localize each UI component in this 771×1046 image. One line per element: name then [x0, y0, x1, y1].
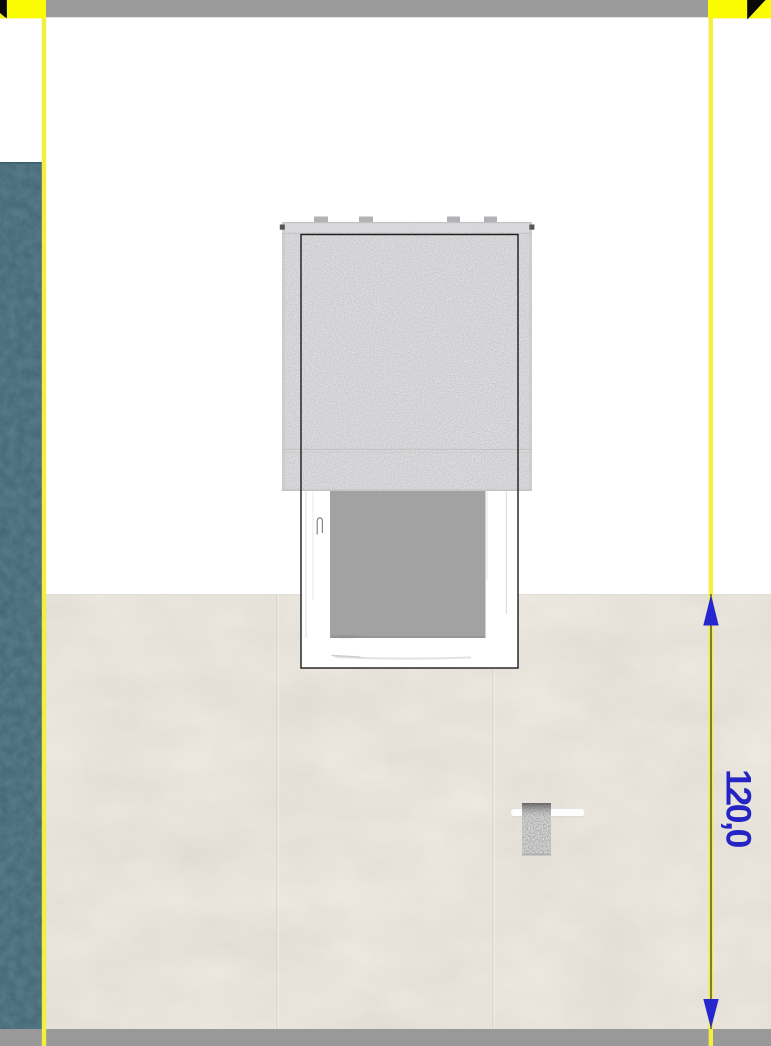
svg-text:120,0: 120,0 [719, 769, 759, 847]
